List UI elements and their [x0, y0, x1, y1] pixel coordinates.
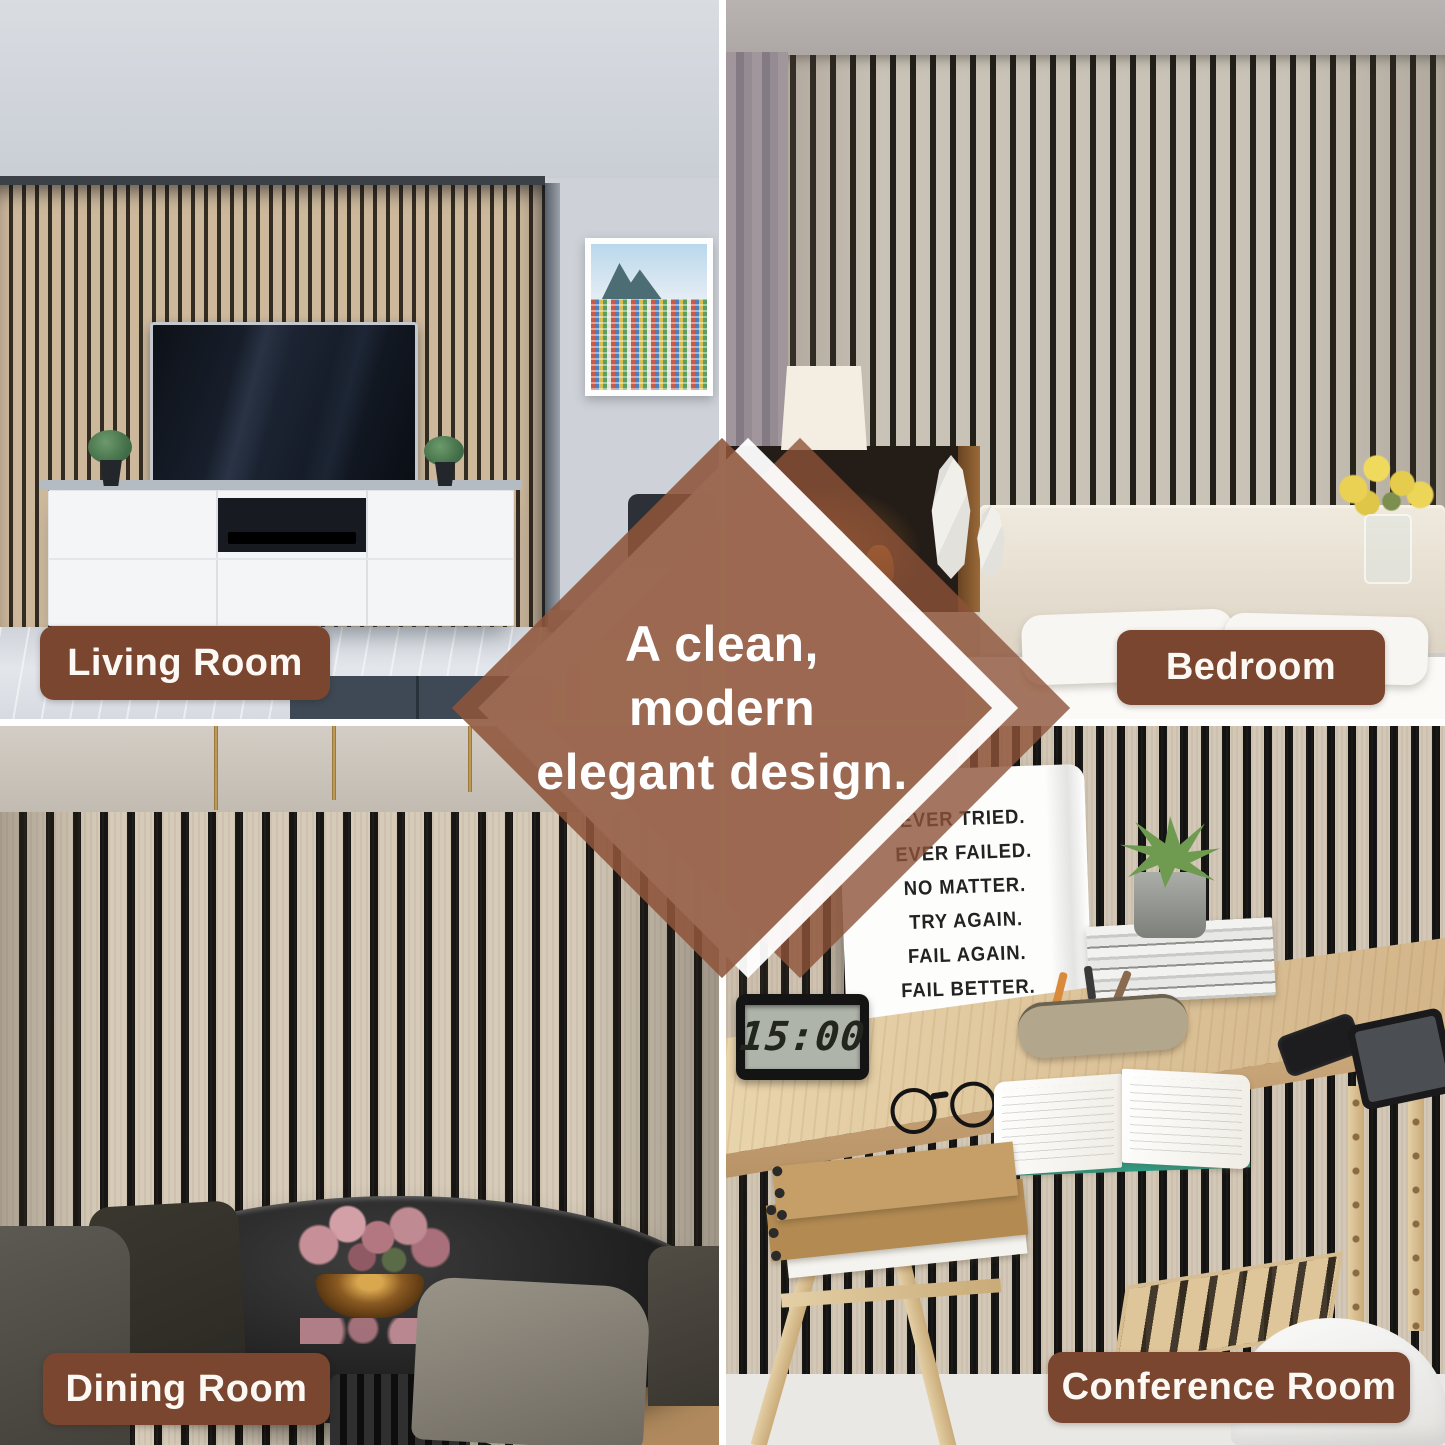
- plant-pot: [1134, 872, 1206, 938]
- bedroom-photo: Bedroom: [726, 0, 1445, 719]
- dining-room-photo: Dining Room: [0, 726, 719, 1445]
- dining-chair: [648, 1246, 719, 1406]
- poster-line: FAIL AGAIN.: [854, 934, 1081, 976]
- painting-colorful-scene: [591, 299, 707, 390]
- trestle-post: [1348, 1086, 1364, 1336]
- ceiling: [0, 0, 719, 180]
- conference-room-label: Conference Room: [1048, 1352, 1410, 1423]
- poster-line: NO MATTER.: [851, 866, 1078, 908]
- media-player: [228, 532, 356, 544]
- clock-display: 15:00: [745, 1005, 860, 1069]
- dining-room-label-text: Dining Room: [66, 1368, 308, 1411]
- coffee-table-leg: [566, 632, 580, 719]
- digital-clock: 15:00: [736, 994, 869, 1080]
- tv-console: [48, 490, 514, 626]
- alcove-top-trim: [0, 176, 545, 185]
- pendant-rod: [468, 726, 472, 792]
- tv-screen: [150, 322, 418, 486]
- coffee-table-top: [548, 610, 719, 632]
- product-collage: Living Room Bedroom: [0, 0, 1445, 1445]
- console-seam: [48, 558, 514, 560]
- tablet: [1346, 1007, 1445, 1111]
- clock-time: 15:00: [738, 1014, 867, 1060]
- pencil-case: [1016, 992, 1189, 1060]
- bedroom-label-text: Bedroom: [1166, 646, 1336, 689]
- conference-room-label-text: Conference Room: [1062, 1366, 1397, 1409]
- trestle-post: [1408, 1071, 1424, 1331]
- open-book-right-page: [1122, 1069, 1250, 1170]
- pendant-rod: [332, 726, 336, 800]
- poster-line: EVER TRIED.: [849, 798, 1076, 840]
- velvet-chair: [411, 1276, 651, 1445]
- living-room-label: Living Room: [40, 626, 330, 700]
- pendant-rod: [582, 726, 586, 784]
- console-open-shelf: [218, 498, 366, 552]
- ceiling: [0, 726, 719, 812]
- framed-painting: [585, 238, 713, 396]
- armchair: [628, 494, 716, 568]
- alcove-side-trim: [545, 183, 560, 635]
- bedroom-label: Bedroom: [1117, 630, 1385, 705]
- amber-vase: [864, 545, 894, 591]
- table-lamp: [781, 366, 867, 450]
- dining-room-label: Dining Room: [43, 1353, 330, 1425]
- glass-vase: [1364, 514, 1412, 584]
- living-room-photo: Living Room: [0, 0, 719, 719]
- ceiling: [726, 0, 1445, 62]
- coffee-table-leg: [688, 632, 702, 719]
- poster-line: EVER FAILED.: [850, 832, 1077, 874]
- amber-vase: [814, 528, 852, 590]
- conference-room-photo: EVER TRIED. EVER FAILED. NO MATTER. TRY …: [726, 726, 1445, 1445]
- poster-line: TRY AGAIN.: [852, 900, 1079, 942]
- living-room-label-text: Living Room: [67, 642, 303, 685]
- pendant-rod: [214, 726, 218, 810]
- bench: [726, 612, 980, 719]
